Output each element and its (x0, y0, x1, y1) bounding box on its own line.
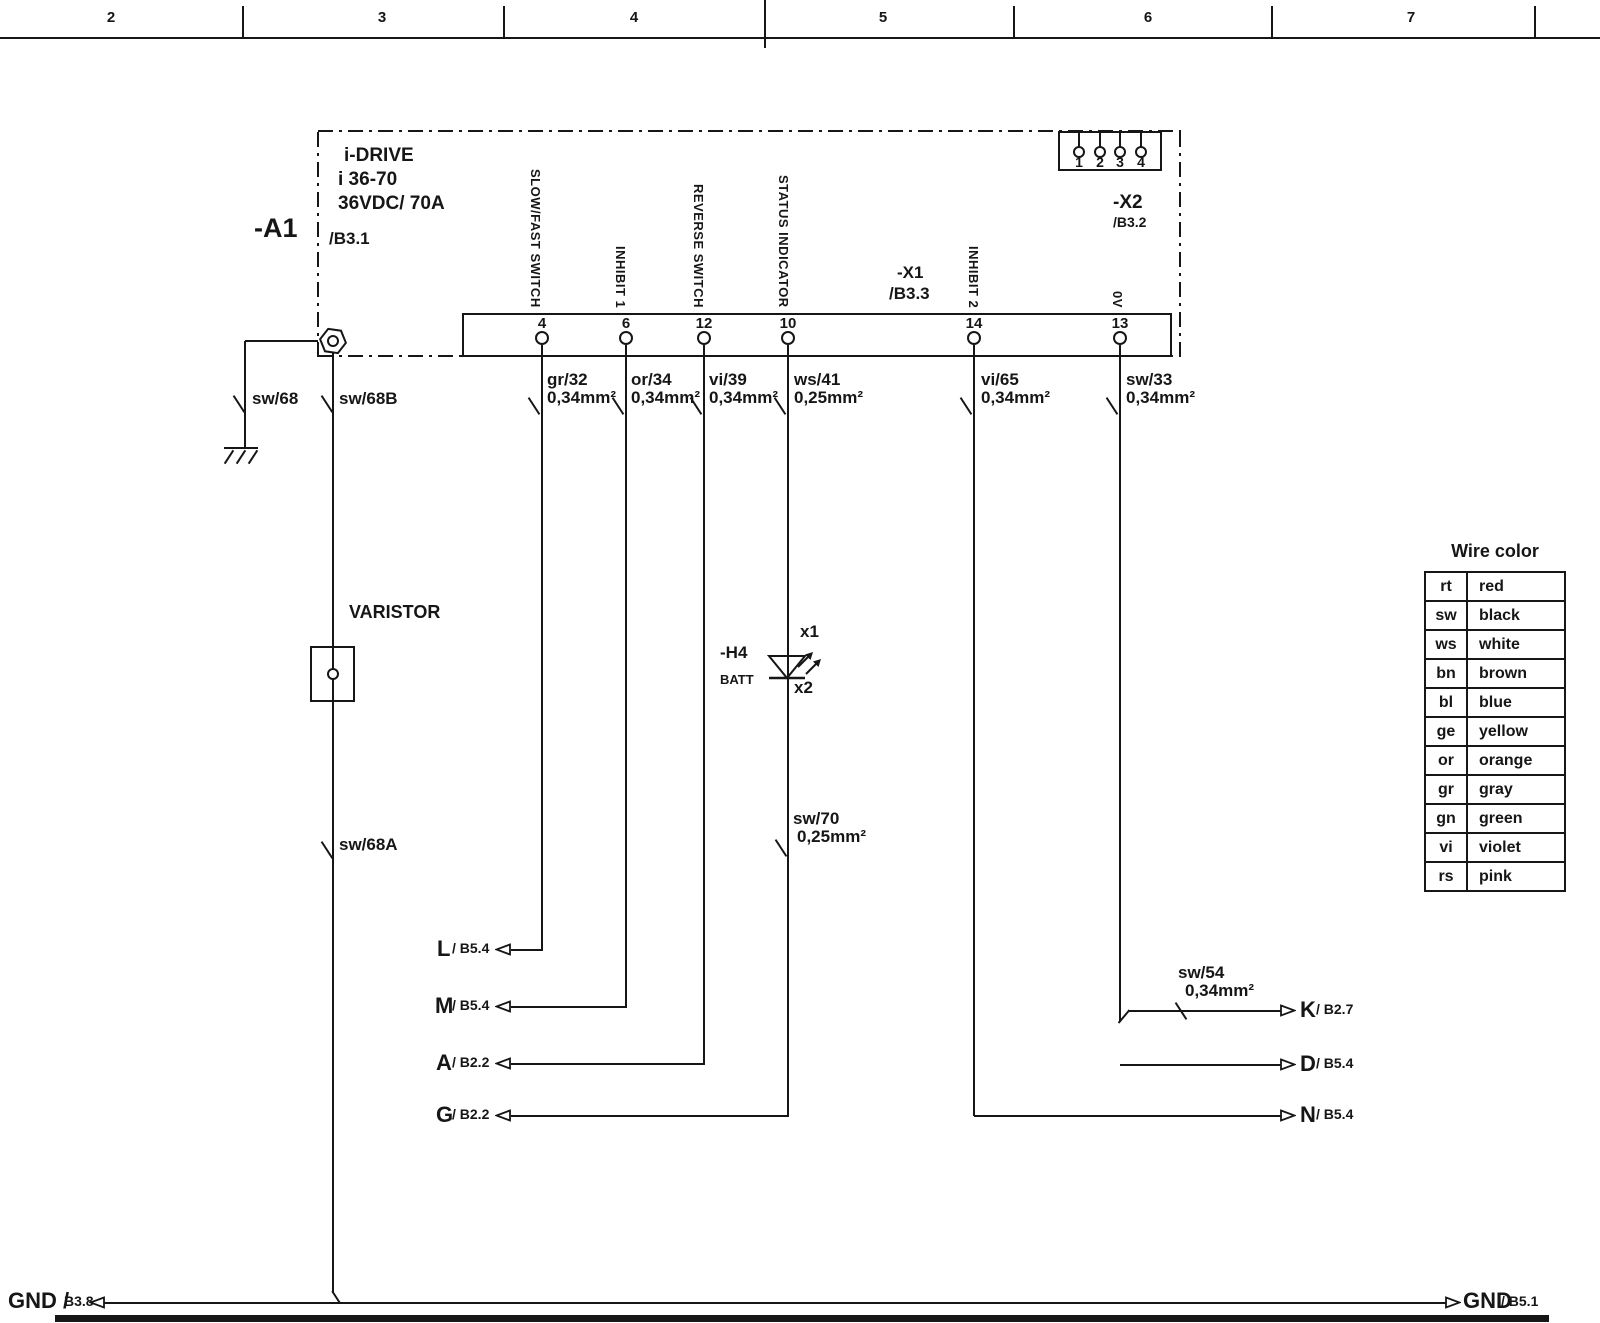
x2-pin-number: 4 (1137, 155, 1145, 170)
color-code: gr (1426, 781, 1466, 799)
x1-pin-number: 12 (696, 316, 713, 332)
wire-label-sw68b: sw/68B (339, 390, 398, 408)
wire-label-vi39: vi/39 0,34mm² (709, 371, 778, 407)
connector-x2-ref: -X2 (1113, 193, 1143, 213)
x1-pin-function: STATUS INDICATOR (776, 175, 791, 308)
x2-pin-number: 2 (1096, 155, 1104, 170)
table-row: rtred (1426, 573, 1564, 600)
color-code: bn (1426, 665, 1466, 683)
ground-icon-stroke (236, 450, 246, 465)
line-to-N (974, 1115, 1281, 1117)
arrow-left-icon (495, 1000, 511, 1013)
device-rating: 36VDC/ 70A (338, 194, 445, 214)
ruler-line (0, 37, 1600, 39)
wire-or34 (625, 345, 627, 1007)
wire-color-table: rtred swblack wswhite bnbrown blblue gey… (1424, 571, 1566, 892)
wire-bolt-to-gnd (245, 340, 318, 342)
line-to-G (511, 1115, 789, 1117)
wire-label-vi65: vi/65 0,34mm² (981, 371, 1050, 407)
wire-size: 0,34mm² (547, 389, 616, 407)
wire-label-sw68a: sw/68A (339, 836, 398, 854)
color-code: rs (1426, 868, 1466, 886)
table-row: bnbrown (1426, 658, 1564, 687)
wire-size: 0,34mm² (709, 389, 778, 407)
color-code: ge (1426, 723, 1466, 741)
wire-label-sw54: sw/54 0,34mm² (1178, 964, 1254, 1000)
color-name: brown (1466, 660, 1562, 687)
wire-vi65 (973, 345, 975, 1116)
connector-x1-sheet: /B3.3 (889, 285, 930, 303)
wire-size: 0,34mm² (981, 389, 1050, 407)
device-border-top (318, 130, 1181, 132)
ground-icon-stroke (224, 450, 234, 465)
wire-gr32 (541, 345, 543, 950)
wire-marker (528, 397, 541, 415)
color-name: orange (1466, 747, 1562, 774)
arrow-right-icon (1280, 1058, 1296, 1071)
led-pin-x2: x2 (794, 679, 813, 697)
gnd-right-sheet: / B5.1 (1501, 1294, 1538, 1309)
color-name: green (1466, 805, 1562, 832)
wire-size: 0,25mm² (797, 828, 866, 846)
ruler-number: 4 (630, 10, 638, 26)
ruler-tick (1271, 6, 1273, 37)
wire-name: gr/32 (547, 371, 616, 389)
ruler-tick-center (764, 0, 766, 48)
varistor-label: VARISTOR (349, 603, 440, 622)
arrow-right-icon (1280, 1004, 1296, 1017)
wire-name: vi/65 (981, 371, 1050, 389)
wire-marker (775, 839, 788, 857)
arrow-left-icon (495, 1109, 511, 1122)
table-row: gngreen (1426, 803, 1564, 832)
wire-vi39 (703, 345, 705, 1064)
connector-x2-sheet: /B3.2 (1113, 215, 1146, 230)
line-to-L (511, 949, 543, 951)
dest-letter: L (437, 937, 450, 960)
wire-name: sw/54 (1178, 964, 1254, 982)
wire-ws41 (787, 345, 789, 1116)
dest-letter: D (1300, 1052, 1316, 1075)
wire-color-table-title: Wire color (1424, 542, 1566, 561)
device-model: i 36-70 (338, 170, 397, 190)
wire-size: 0,25mm² (794, 389, 863, 407)
arrow-right-icon (1280, 1109, 1296, 1122)
gnd-rail (104, 1302, 1446, 1304)
wire-label-sw68: sw/68 (252, 390, 298, 408)
dest-letter: G (436, 1103, 453, 1126)
sheet-border-bar (55, 1315, 1549, 1322)
line-to-D (1120, 1064, 1281, 1066)
device-ref: -A1 (254, 214, 298, 242)
dest-sheet: / B2.7 (1316, 1002, 1353, 1017)
color-code: bl (1426, 694, 1466, 712)
table-row: rspink (1426, 861, 1564, 890)
dest-sheet: / B2.2 (452, 1055, 489, 1070)
dest-sheet: / B5.4 (1316, 1107, 1353, 1122)
color-code: vi (1426, 839, 1466, 857)
x2-pin-stub (1140, 133, 1142, 147)
color-code: ws (1426, 636, 1466, 654)
ruler-tick (1534, 6, 1536, 37)
wire-name: vi/39 (709, 371, 778, 389)
ruler-number: 5 (879, 10, 887, 26)
table-row: viviolet (1426, 832, 1564, 861)
x1-pin-function: REVERSE SWITCH (691, 184, 706, 308)
wire-sw68b (332, 352, 334, 1293)
dest-sheet: / B5.4 (1316, 1056, 1353, 1071)
color-code: gn (1426, 810, 1466, 828)
arrow-left-icon (495, 1057, 511, 1070)
wire-name: sw/70 (793, 810, 866, 828)
x1-pin-number: 14 (966, 316, 983, 332)
x1-pin-number: 10 (780, 316, 797, 332)
wire-sw68 (244, 341, 246, 448)
x2-pin-number: 3 (1116, 155, 1124, 170)
schematic-sheet: 2 3 4 5 6 7 -A1 i-DRIVE i 36-70 36VDC/ 7… (0, 0, 1600, 1323)
ruler-tick (503, 6, 505, 37)
x2-pin-stub (1099, 133, 1101, 147)
x1-pin-function: INHIBIT 2 (966, 246, 981, 308)
device-sheet-ref: /B3.1 (329, 230, 370, 248)
x1-pin-circle (619, 331, 633, 345)
ruler-tick (1013, 6, 1015, 37)
table-row: geyellow (1426, 716, 1564, 745)
color-name: black (1466, 602, 1562, 629)
wire-name: ws/41 (794, 371, 863, 389)
x2-pin-stub (1119, 133, 1121, 147)
arrow-right-icon (1445, 1296, 1461, 1309)
ground-icon-stroke (248, 450, 258, 465)
line-to-A (511, 1063, 705, 1065)
x1-pin-circle (535, 331, 549, 345)
x1-pin-number: 6 (622, 316, 630, 332)
device-title: i-DRIVE (344, 146, 414, 166)
dest-letter: A (436, 1051, 452, 1074)
gnd-left-sheet: B3.8 (64, 1294, 94, 1309)
line-to-K (1129, 1010, 1281, 1012)
ruler-tick (242, 6, 244, 37)
x2-pin-stub (1078, 133, 1080, 147)
wire-marker (960, 397, 973, 415)
wire-label-ws41: ws/41 0,25mm² (794, 371, 863, 407)
ruler-number: 3 (378, 10, 386, 26)
wire-size: 0,34mm² (1126, 389, 1195, 407)
arrow-left-icon (495, 943, 511, 956)
color-code: rt (1426, 578, 1466, 596)
dest-sheet: / B2.2 (452, 1107, 489, 1122)
x1-pin-number: 13 (1112, 316, 1129, 332)
ruler-number: 6 (1144, 10, 1152, 26)
x1-pin-circle (967, 331, 981, 345)
varistor-terminal (327, 668, 339, 680)
table-row: blblue (1426, 687, 1564, 716)
wire-name: or/34 (631, 371, 700, 389)
dest-letter: N (1300, 1103, 1316, 1126)
wire-label-or34: or/34 0,34mm² (631, 371, 700, 407)
color-name: red (1466, 573, 1562, 600)
x1-pin-function: SLOW/FAST SWITCH (528, 169, 543, 308)
connector-x1-box (462, 313, 1172, 357)
device-border-right (1179, 130, 1181, 357)
ground-icon (224, 447, 258, 449)
gnd-left-label: GND / (8, 1289, 69, 1312)
wire-sw33 (1119, 345, 1121, 1022)
connector-x1-ref: -X1 (897, 264, 923, 282)
x2-pin-number: 1 (1075, 155, 1083, 170)
x1-pin-function: 0V (1110, 291, 1125, 308)
color-name: yellow (1466, 718, 1562, 745)
led-name: BATT (720, 673, 754, 687)
x1-pin-circle (697, 331, 711, 345)
dest-letter: K (1300, 998, 1316, 1021)
ruler-number: 2 (107, 10, 115, 26)
ruler-number: 7 (1407, 10, 1415, 26)
x1-pin-function: INHIBIT 1 (613, 246, 628, 308)
color-name: blue (1466, 689, 1562, 716)
x1-pin-number: 4 (538, 316, 546, 332)
table-row: swblack (1426, 600, 1564, 629)
wire-label-gr32: gr/32 0,34mm² (547, 371, 616, 407)
table-row: grgray (1426, 774, 1564, 803)
wire-name: sw/33 (1126, 371, 1195, 389)
dest-letter: M (435, 994, 453, 1017)
color-name: pink (1466, 863, 1562, 890)
color-name: gray (1466, 776, 1562, 803)
wire-size: 0,34mm² (1185, 982, 1254, 1000)
table-row: ororange (1426, 745, 1564, 774)
color-name: white (1466, 631, 1562, 658)
table-row: wswhite (1426, 629, 1564, 658)
x1-pin-circle (781, 331, 795, 345)
wire-marker (1106, 397, 1119, 415)
wire-label-sw70: sw/70 0,25mm² (793, 810, 866, 846)
line-to-M (511, 1006, 627, 1008)
led-ref: -H4 (720, 644, 747, 662)
led-pin-x1: x1 (800, 623, 819, 641)
color-code: sw (1426, 607, 1466, 625)
dest-sheet: / B5.4 (452, 941, 489, 956)
color-code: or (1426, 752, 1466, 770)
dest-sheet: / B5.4 (452, 998, 489, 1013)
wire-label-sw33: sw/33 0,34mm² (1126, 371, 1195, 407)
x1-pin-circle (1113, 331, 1127, 345)
color-name: violet (1466, 834, 1562, 861)
